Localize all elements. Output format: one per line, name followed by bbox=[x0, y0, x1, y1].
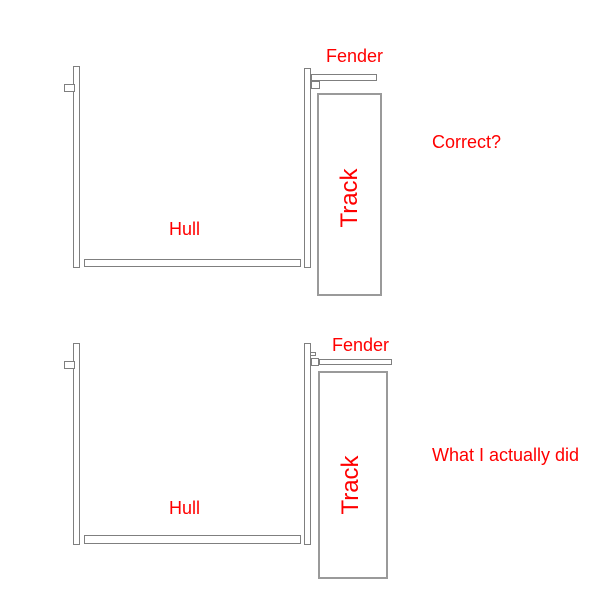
caption-actual: What I actually did bbox=[432, 445, 579, 465]
fender-mount-square bbox=[311, 81, 320, 89]
hull-right-wall bbox=[304, 68, 311, 268]
caption-correct: Correct? bbox=[432, 132, 501, 152]
fender-label: Fender bbox=[332, 335, 389, 355]
fender-bar bbox=[319, 359, 392, 365]
hull-bottom-plate bbox=[84, 535, 301, 544]
hull-label: Hull bbox=[169, 219, 200, 239]
hull-left-wall bbox=[73, 343, 80, 545]
hull-side-tab bbox=[64, 84, 75, 92]
hull-bottom-plate bbox=[84, 259, 301, 267]
hull-label: Hull bbox=[169, 498, 200, 518]
track-label: Track bbox=[339, 455, 363, 514]
wall-notch-tick bbox=[310, 352, 316, 356]
hull-side-tab bbox=[64, 361, 75, 369]
diagram-canvas: Fender Hull Track Correct? Fender Hull T… bbox=[0, 0, 600, 605]
hull-right-wall bbox=[304, 343, 311, 545]
fender-bar bbox=[311, 74, 377, 81]
track-label: Track bbox=[338, 168, 362, 227]
hull-left-wall bbox=[73, 66, 80, 268]
fender-mount-square bbox=[311, 358, 319, 366]
fender-label: Fender bbox=[326, 46, 383, 66]
